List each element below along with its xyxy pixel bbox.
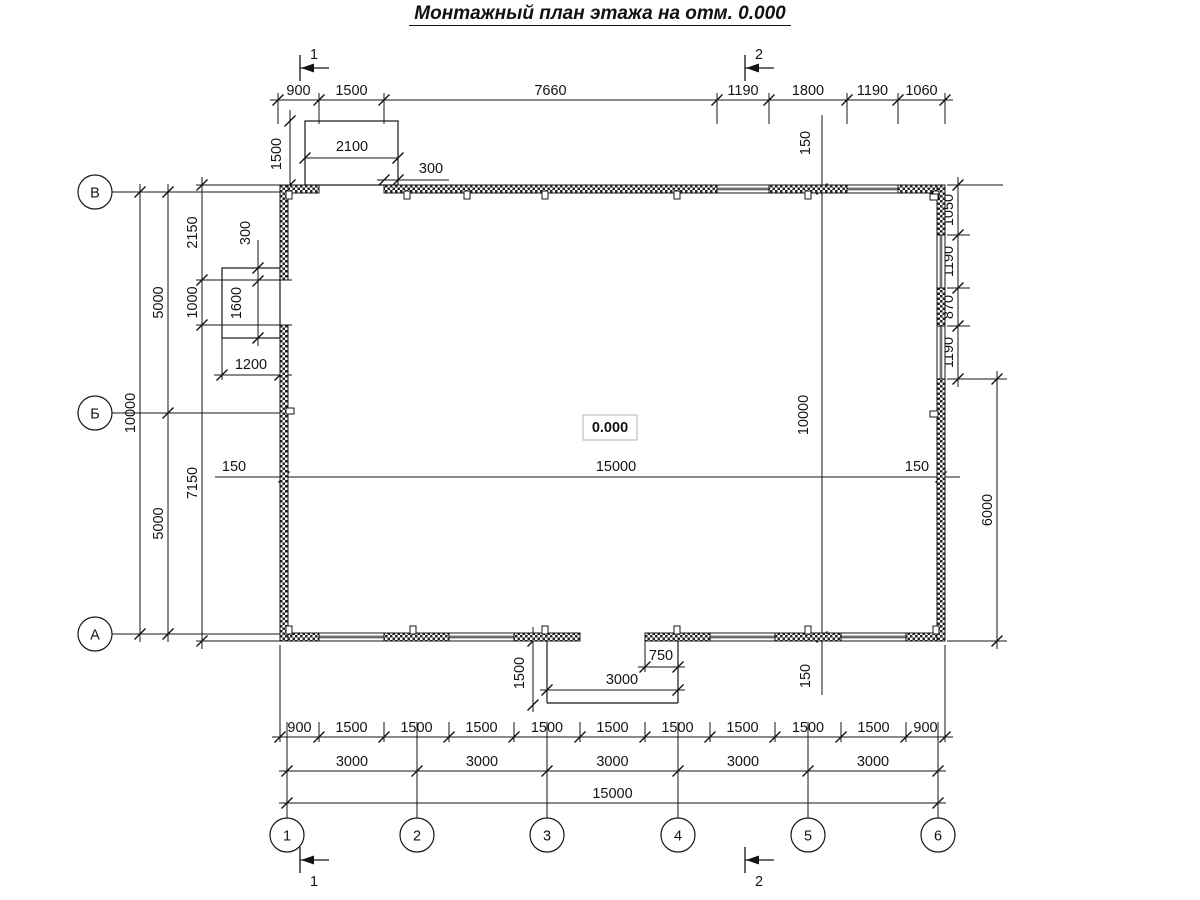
walls xyxy=(280,185,945,641)
drawing-canvas: 9001500766011901800119010609001500150015… xyxy=(0,0,1200,900)
dim-label: 1500 xyxy=(726,720,758,736)
dim-label: 900 xyxy=(286,83,310,99)
anchor-plate xyxy=(674,626,680,634)
dim-label: 3000 xyxy=(857,754,889,770)
anchor-plate xyxy=(542,191,548,199)
section-arrow-icon xyxy=(301,64,314,73)
dim-label: 1500 xyxy=(531,720,563,736)
dim-label: 150 xyxy=(905,459,929,475)
dim-label: 1500 xyxy=(596,720,628,736)
dim-label: 5000 xyxy=(151,507,167,539)
anchor-plate xyxy=(404,191,410,199)
window-opening xyxy=(717,185,769,193)
window-opening xyxy=(937,235,945,288)
dim-label: 5000 xyxy=(151,286,167,318)
dim-label: 1190 xyxy=(727,83,758,99)
dim-label: 900 xyxy=(913,720,937,736)
dim-label: 150 xyxy=(798,131,814,155)
dim-label: 2100 xyxy=(336,139,368,155)
anchor-plate xyxy=(286,408,294,414)
elevation-value: 0.000 xyxy=(592,420,628,436)
dim-label: 1500 xyxy=(661,720,693,736)
section-arrow-icon xyxy=(746,856,759,865)
section-arrow-icon xyxy=(301,856,314,865)
axis-col-label: 1 xyxy=(283,829,291,845)
dim-label: 1500 xyxy=(400,720,432,736)
dim-label: 3000 xyxy=(606,672,638,688)
axis-row-label: А xyxy=(90,628,100,644)
dim-label: 3000 xyxy=(336,754,368,770)
anchor-plate xyxy=(464,191,470,199)
dim-label: 1200 xyxy=(235,357,267,373)
axis-markers: ВБА123456 xyxy=(78,175,955,852)
wall-segment xyxy=(384,185,717,193)
window-opening xyxy=(937,326,945,379)
dim-label: 1500 xyxy=(269,138,285,170)
axis-col-label: 4 xyxy=(674,829,682,845)
dim-label: 2150 xyxy=(185,216,201,248)
dim-label: 900 xyxy=(287,720,311,736)
dim-label: 3000 xyxy=(727,754,759,770)
section-label: 1 xyxy=(310,874,318,890)
dim-label: 1190 xyxy=(857,83,888,99)
dim-label: 1500 xyxy=(512,657,528,689)
drawing-title-text: Монтажный план этажа на отм. 0.000 xyxy=(409,3,790,26)
wall-segment xyxy=(937,288,945,326)
anchor-plate xyxy=(805,191,811,199)
wall-segment xyxy=(280,325,288,641)
axis-row-label: Б xyxy=(90,407,100,423)
dim-label: 1500 xyxy=(335,720,367,736)
anchor-plate xyxy=(930,411,938,417)
dim-label: 300 xyxy=(238,221,254,245)
dim-label: 7660 xyxy=(534,83,566,99)
window-opening xyxy=(710,633,775,641)
anchor-plate xyxy=(930,194,938,200)
axis-col-label: 5 xyxy=(804,829,812,845)
anchor-plate xyxy=(805,626,811,634)
axis-row-label: В xyxy=(90,186,100,202)
dim-label: 1800 xyxy=(792,83,824,99)
dim-label: 1000 xyxy=(185,286,201,318)
dim-label: 750 xyxy=(649,648,673,664)
dim-label: 1600 xyxy=(229,287,245,319)
dim-label: 1500 xyxy=(792,720,824,736)
dim-label: 1060 xyxy=(905,83,937,99)
anchor-plate xyxy=(542,626,548,634)
anchor-plate xyxy=(286,191,292,199)
section-arrow-icon xyxy=(746,64,759,73)
anchor-plate xyxy=(410,626,416,634)
dim-label: 3000 xyxy=(466,754,498,770)
dim-label: 10000 xyxy=(796,395,812,435)
window-opening xyxy=(449,633,514,641)
dim-label: 1500 xyxy=(857,720,889,736)
elevation-mark: 0.000 xyxy=(583,415,637,440)
drawing-title: Монтажный план этажа на отм. 0.000 xyxy=(0,3,1200,25)
axis-col-label: 2 xyxy=(413,829,421,845)
dim-label: 7150 xyxy=(185,467,201,499)
section-label: 2 xyxy=(755,874,763,890)
dim-label: 15000 xyxy=(592,786,632,802)
dim-label: 1500 xyxy=(335,83,367,99)
dim-label: 1500 xyxy=(465,720,497,736)
section-marks: 1212 xyxy=(300,47,774,890)
extension-lines xyxy=(112,93,1007,818)
dim-label: 150 xyxy=(222,459,246,475)
section-label: 2 xyxy=(755,47,763,63)
dim-label: 15000 xyxy=(596,459,636,475)
window-opening xyxy=(319,633,384,641)
window-opening xyxy=(847,185,898,193)
anchor-plate xyxy=(933,626,939,634)
axis-col-label: 6 xyxy=(934,829,942,845)
section-label: 1 xyxy=(310,47,318,63)
dim-label: 6000 xyxy=(980,494,996,526)
dim-label: 3000 xyxy=(596,754,628,770)
anchor-plate xyxy=(286,626,292,634)
anchor-plate xyxy=(674,191,680,199)
axis-col-label: 3 xyxy=(543,829,551,845)
dim-label: 10000 xyxy=(123,393,139,433)
dim-label: 150 xyxy=(798,664,814,688)
dim-label: 300 xyxy=(419,161,443,177)
floor-plan-drawing: 9001500766011901800119010609001500150015… xyxy=(0,0,1200,900)
window-opening xyxy=(841,633,906,641)
wall-segment xyxy=(937,379,945,641)
